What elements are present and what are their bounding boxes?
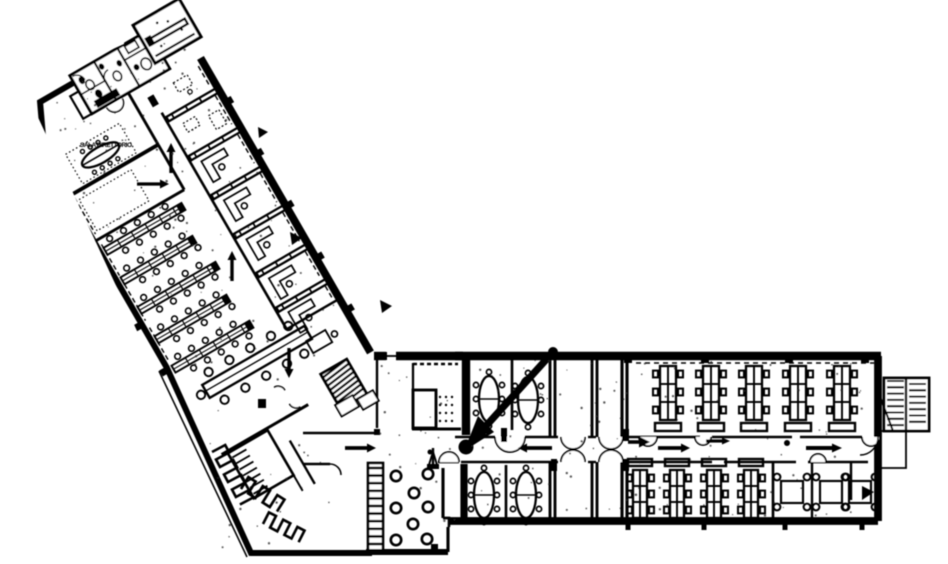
- svg-text:SALA DIRETTORIO: SALA DIRETTORIO: [80, 142, 132, 149]
